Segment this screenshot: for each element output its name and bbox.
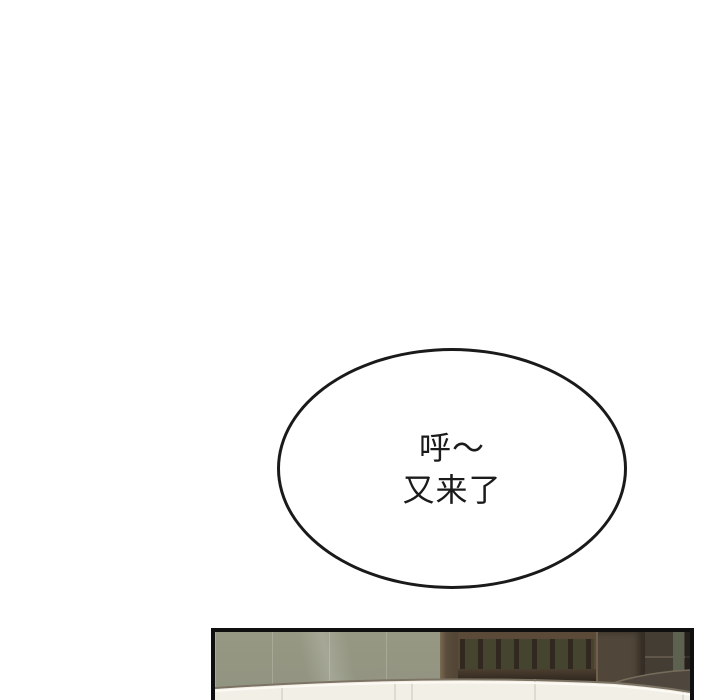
speech-bubble-line-2: 又来了 <box>402 469 501 511</box>
speech-bubble: 呼～ 又来了 <box>277 348 627 589</box>
speech-bubble-line-1: 呼～ <box>419 427 485 469</box>
comic-panel <box>211 628 694 700</box>
countertop-graphic <box>215 632 690 700</box>
comic-page: 呼～ 又来了 <box>0 0 720 700</box>
comic-panel-artwork <box>215 632 690 700</box>
